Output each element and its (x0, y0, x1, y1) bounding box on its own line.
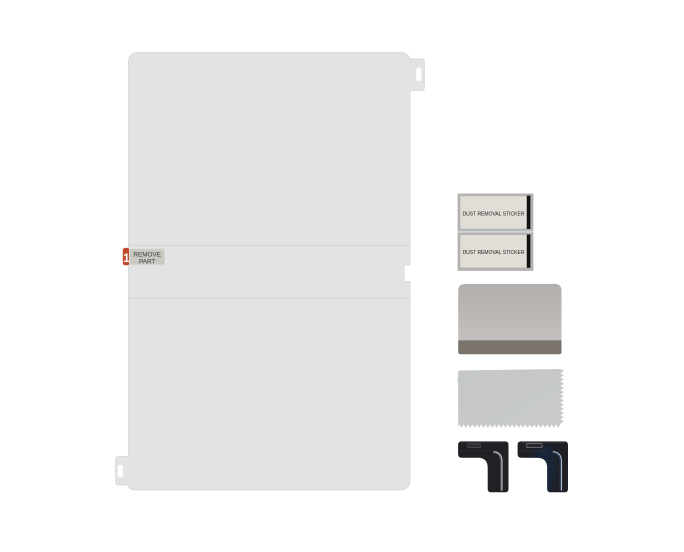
svg-text:DUST REMOVAL STICKER: DUST REMOVAL STICKER (463, 211, 525, 217)
svg-text:PART: PART (139, 258, 156, 265)
svg-text:DUST REMOVAL STICKER: DUST REMOVAL STICKER (463, 250, 525, 256)
svg-text:REMOVE: REMOVE (133, 251, 161, 258)
